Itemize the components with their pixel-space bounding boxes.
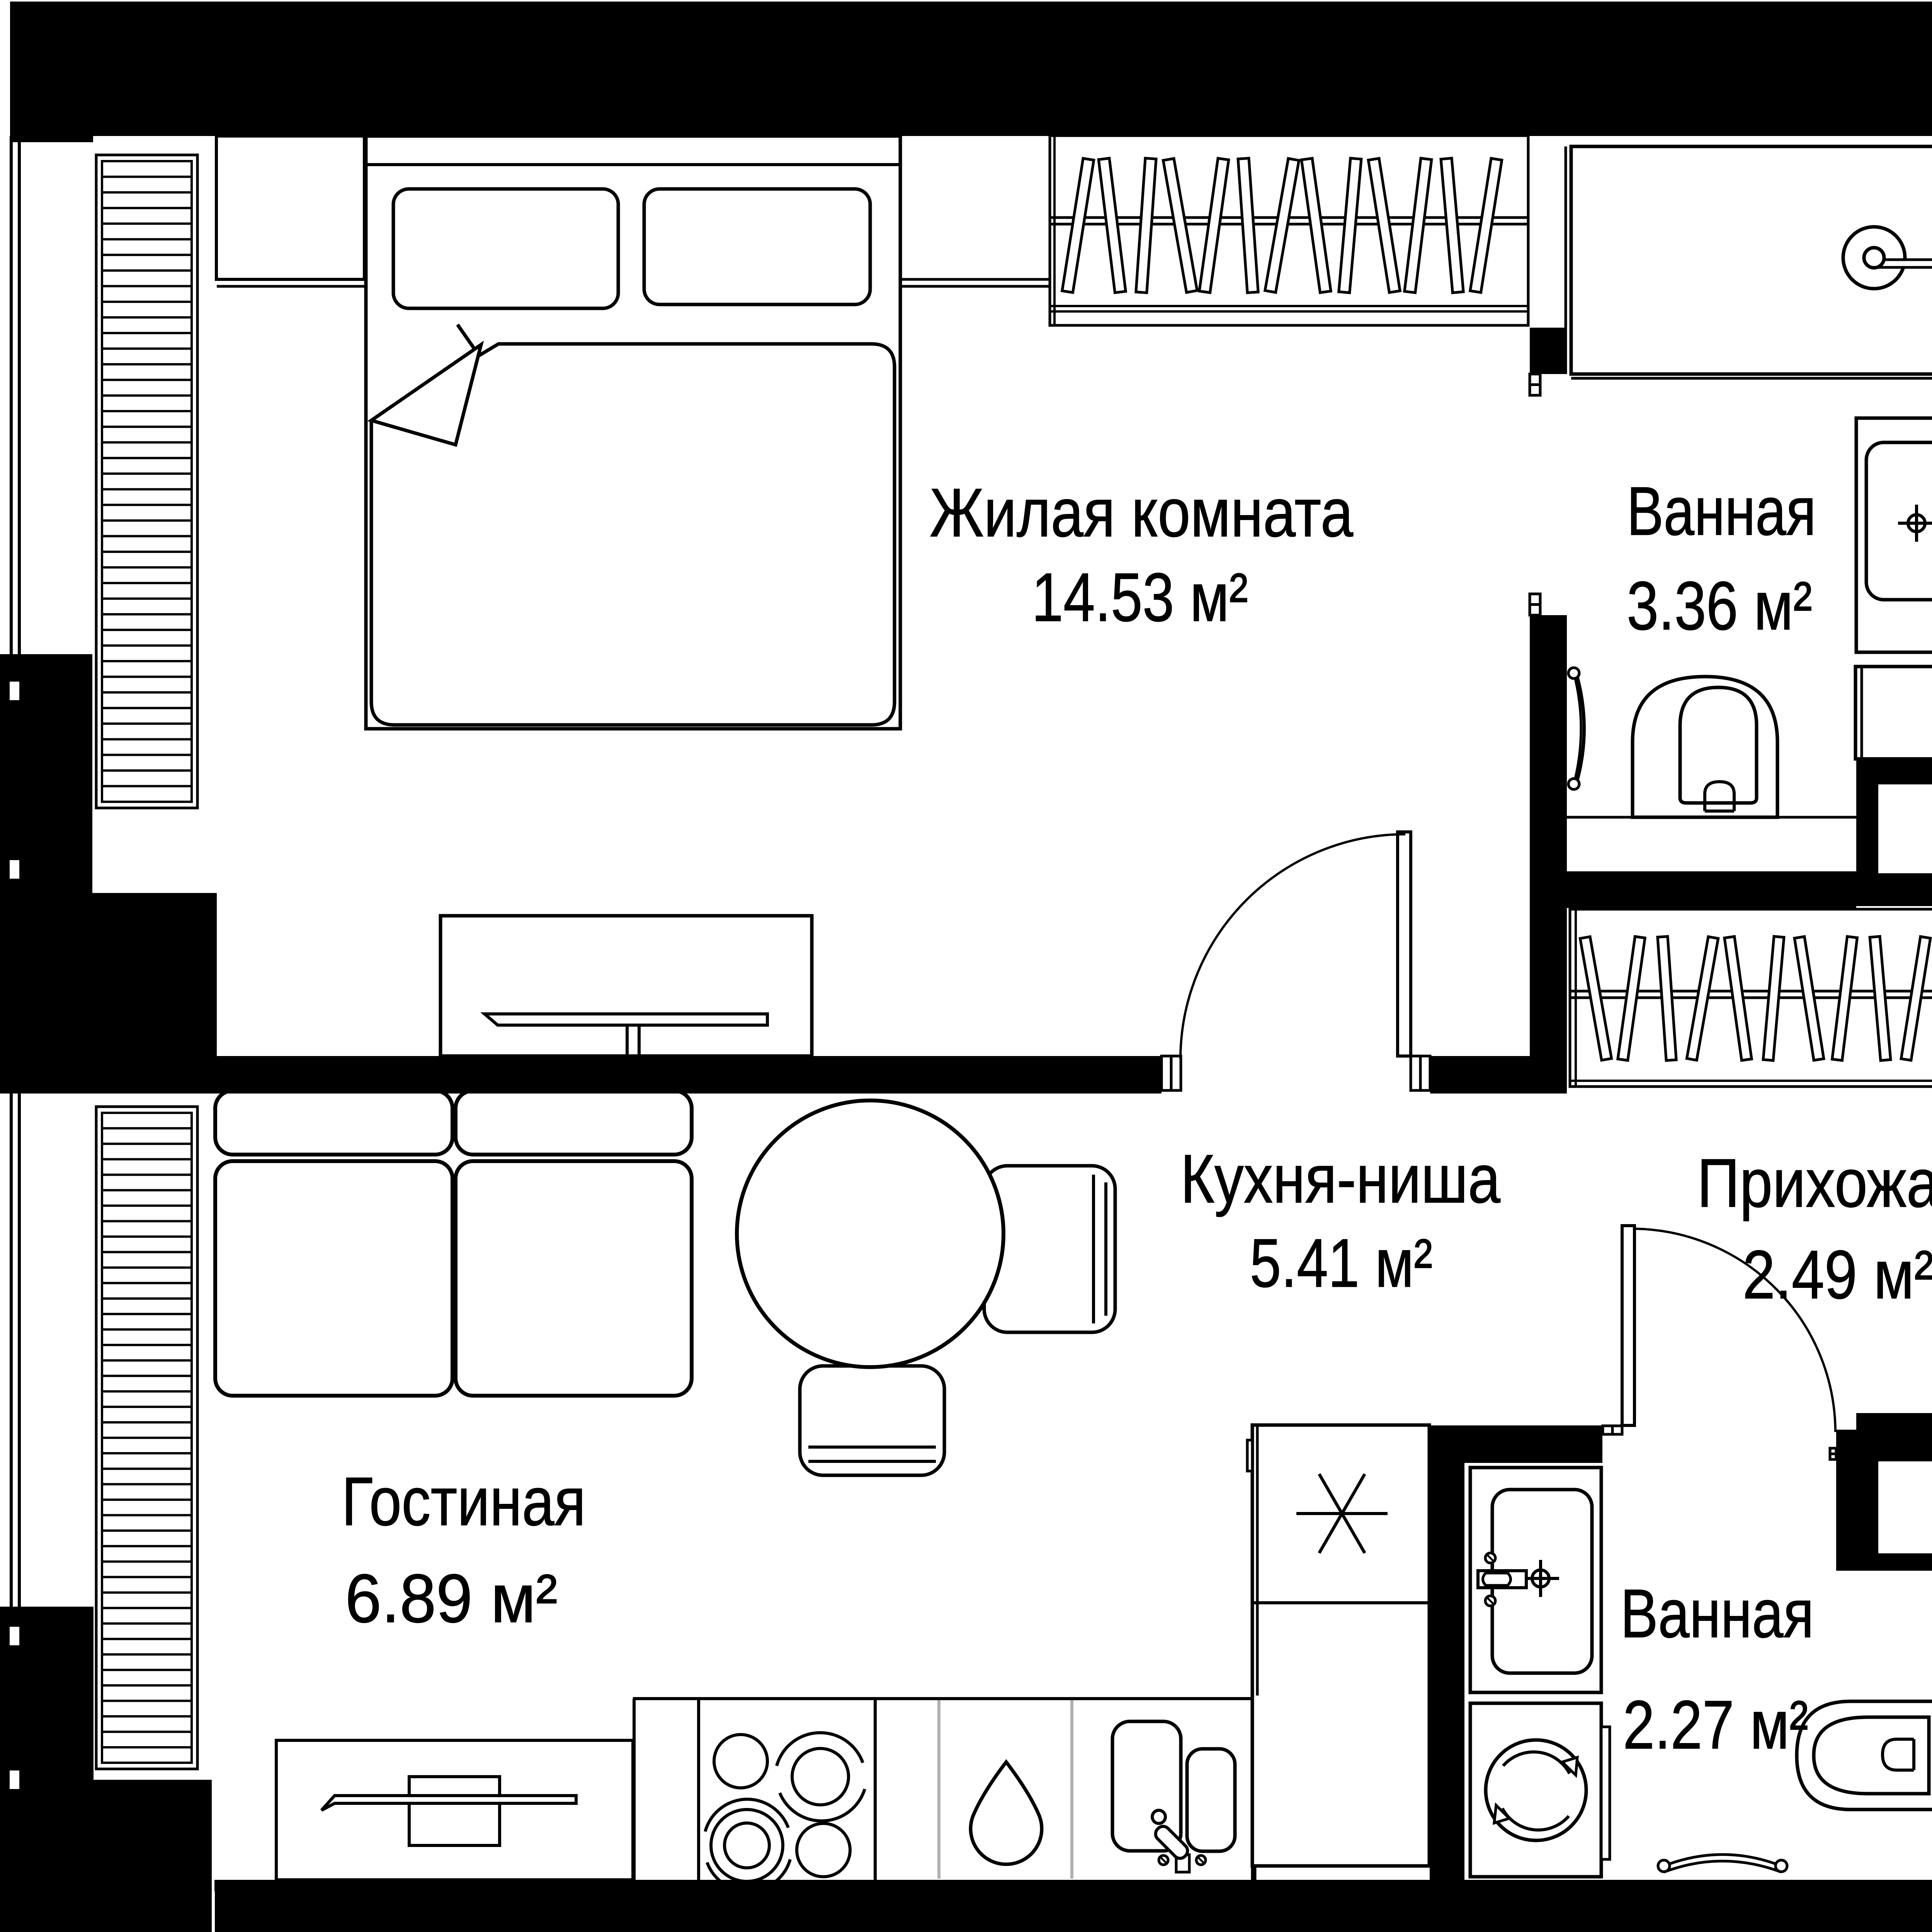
svg-text:Ванная: Ванная	[1621, 1575, 1814, 1652]
svg-text:2.49 м²: 2.49 м²	[1743, 1236, 1932, 1313]
svg-text:5.41 м²: 5.41 м²	[1250, 1225, 1433, 1301]
svg-text:2.27 м²: 2.27 м²	[1623, 1686, 1808, 1763]
svg-text:Гостиная: Гостиная	[342, 1463, 586, 1540]
svg-text:Жилая комната: Жилая комната	[930, 474, 1353, 551]
svg-text:14.53 м²: 14.53 м²	[1032, 559, 1248, 636]
svg-text:Кухня-ниша: Кухня-ниша	[1180, 1140, 1500, 1217]
svg-text:3.36 м²: 3.36 м²	[1627, 567, 1812, 644]
svg-text:6.89 м²: 6.89 м²	[345, 1560, 558, 1637]
svg-text:Прихожая: Прихожая	[1697, 1145, 1932, 1221]
svg-text:Ванная: Ванная	[1627, 473, 1816, 549]
